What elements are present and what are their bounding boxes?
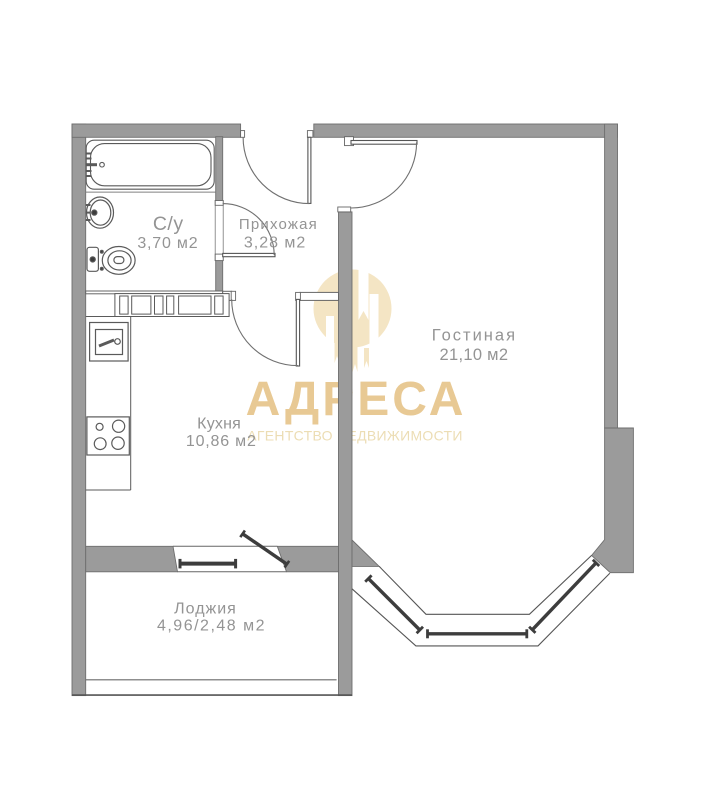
svg-text:С/у: С/у xyxy=(153,213,184,235)
svg-text:3,70 м2: 3,70 м2 xyxy=(137,235,198,252)
svg-text:3,28 м2: 3,28 м2 xyxy=(244,235,306,252)
svg-text:Гостиная: Гостиная xyxy=(432,326,517,344)
svg-text:АГЕНТСТВО НЕДВИЖИМОСТИ: АГЕНТСТВО НЕДВИЖИМОСТИ xyxy=(247,428,463,444)
svg-text:АДРЕСА: АДРЕСА xyxy=(246,373,467,426)
svg-text:4,96/2,48 м2: 4,96/2,48 м2 xyxy=(157,618,266,635)
svg-text:10,86 м2: 10,86 м2 xyxy=(186,433,257,450)
svg-text:Кухня: Кухня xyxy=(197,416,241,433)
svg-text:21,10 м2: 21,10 м2 xyxy=(440,346,509,364)
svg-text:Прихожая: Прихожая xyxy=(239,216,318,233)
svg-text:Лоджия: Лоджия xyxy=(174,601,237,618)
